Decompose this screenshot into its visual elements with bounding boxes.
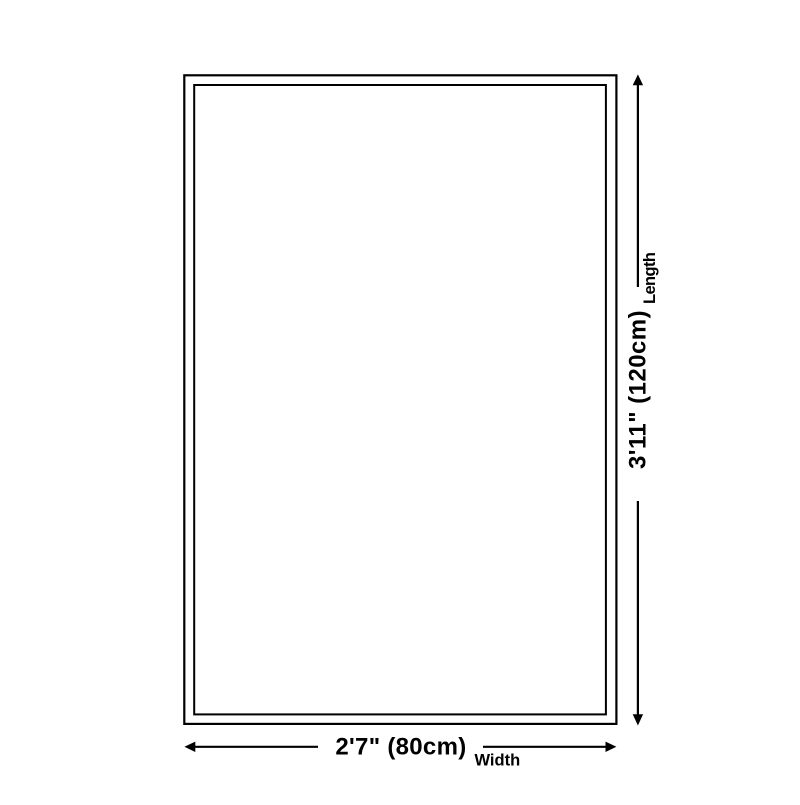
svg-text:Width: Width — [475, 751, 521, 769]
svg-text:3'11" (120cm): 3'11" (120cm) — [625, 310, 652, 469]
svg-text:2'7" (80cm): 2'7" (80cm) — [335, 733, 466, 760]
svg-text:Length: Length — [641, 252, 659, 304]
